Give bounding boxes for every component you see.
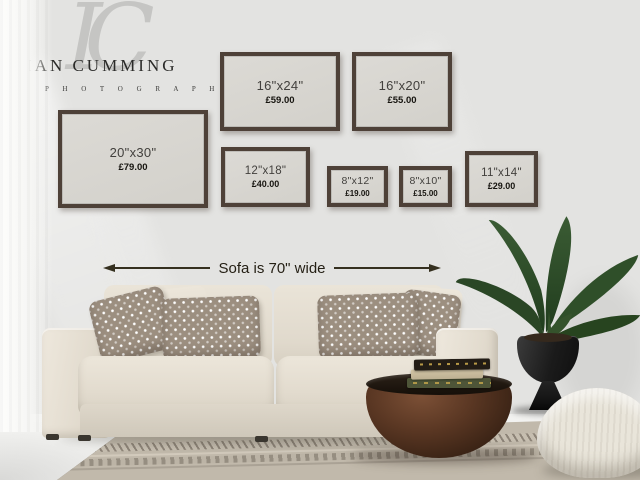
sofa-foot [46, 434, 59, 440]
print-size-label: 16"x24" [257, 78, 304, 93]
print-frame-11x14: 11"x14" £29.00 [465, 151, 538, 207]
print-frame-16x20: 16"x20" £55.00 [352, 52, 452, 131]
print-frame-20x30: 20"x30" £79.00 [58, 110, 208, 208]
print-frame-16x24: 16"x24" £59.00 [220, 52, 340, 131]
sofa-foot [255, 436, 268, 442]
print-price-label: £40.00 [252, 179, 280, 189]
print-price-label: £15.00 [413, 189, 437, 198]
measure-line [334, 267, 429, 269]
print-price-label: £59.00 [265, 95, 294, 106]
book [407, 378, 491, 388]
print-price-label: £19.00 [345, 189, 369, 198]
mockup-canvas: IC IAN CUMMING P H O T O G R A P H Y 20"… [0, 0, 640, 480]
print-size-label: 12"x18" [245, 165, 287, 177]
print-price-label: £55.00 [387, 95, 416, 106]
book [414, 358, 490, 370]
print-size-label: 20"x30" [110, 145, 157, 160]
sofa-width-measure: Sofa is 70" wide [103, 260, 441, 276]
brand-monogram: IC [66, 0, 137, 91]
print-frame-8x10: 8"x10" £15.00 [399, 166, 452, 207]
print-size-label: 8"x10" [409, 175, 441, 187]
print-frame-8x12: 8"x12" £19.00 [327, 166, 388, 207]
measure-line [115, 267, 210, 269]
sofa-foot [78, 435, 91, 441]
brand-subtitle: P H O T O G R A P H Y [45, 85, 239, 93]
print-price-label: £79.00 [118, 162, 147, 173]
arrow-right-icon [429, 264, 441, 272]
print-size-label: 16"x20" [379, 78, 426, 93]
print-frame-12x18: 12"x18" £40.00 [221, 147, 310, 207]
print-price-label: £29.00 [488, 181, 516, 191]
planter-soil [524, 333, 572, 342]
patterned-throw-pillow [317, 292, 419, 359]
patterned-throw-pillow [161, 295, 261, 360]
print-size-label: 11"x14" [481, 167, 522, 179]
arrow-left-icon [103, 264, 115, 272]
sofa-width-label: Sofa is 70" wide [218, 260, 325, 277]
print-size-label: 8"x12" [341, 175, 373, 187]
